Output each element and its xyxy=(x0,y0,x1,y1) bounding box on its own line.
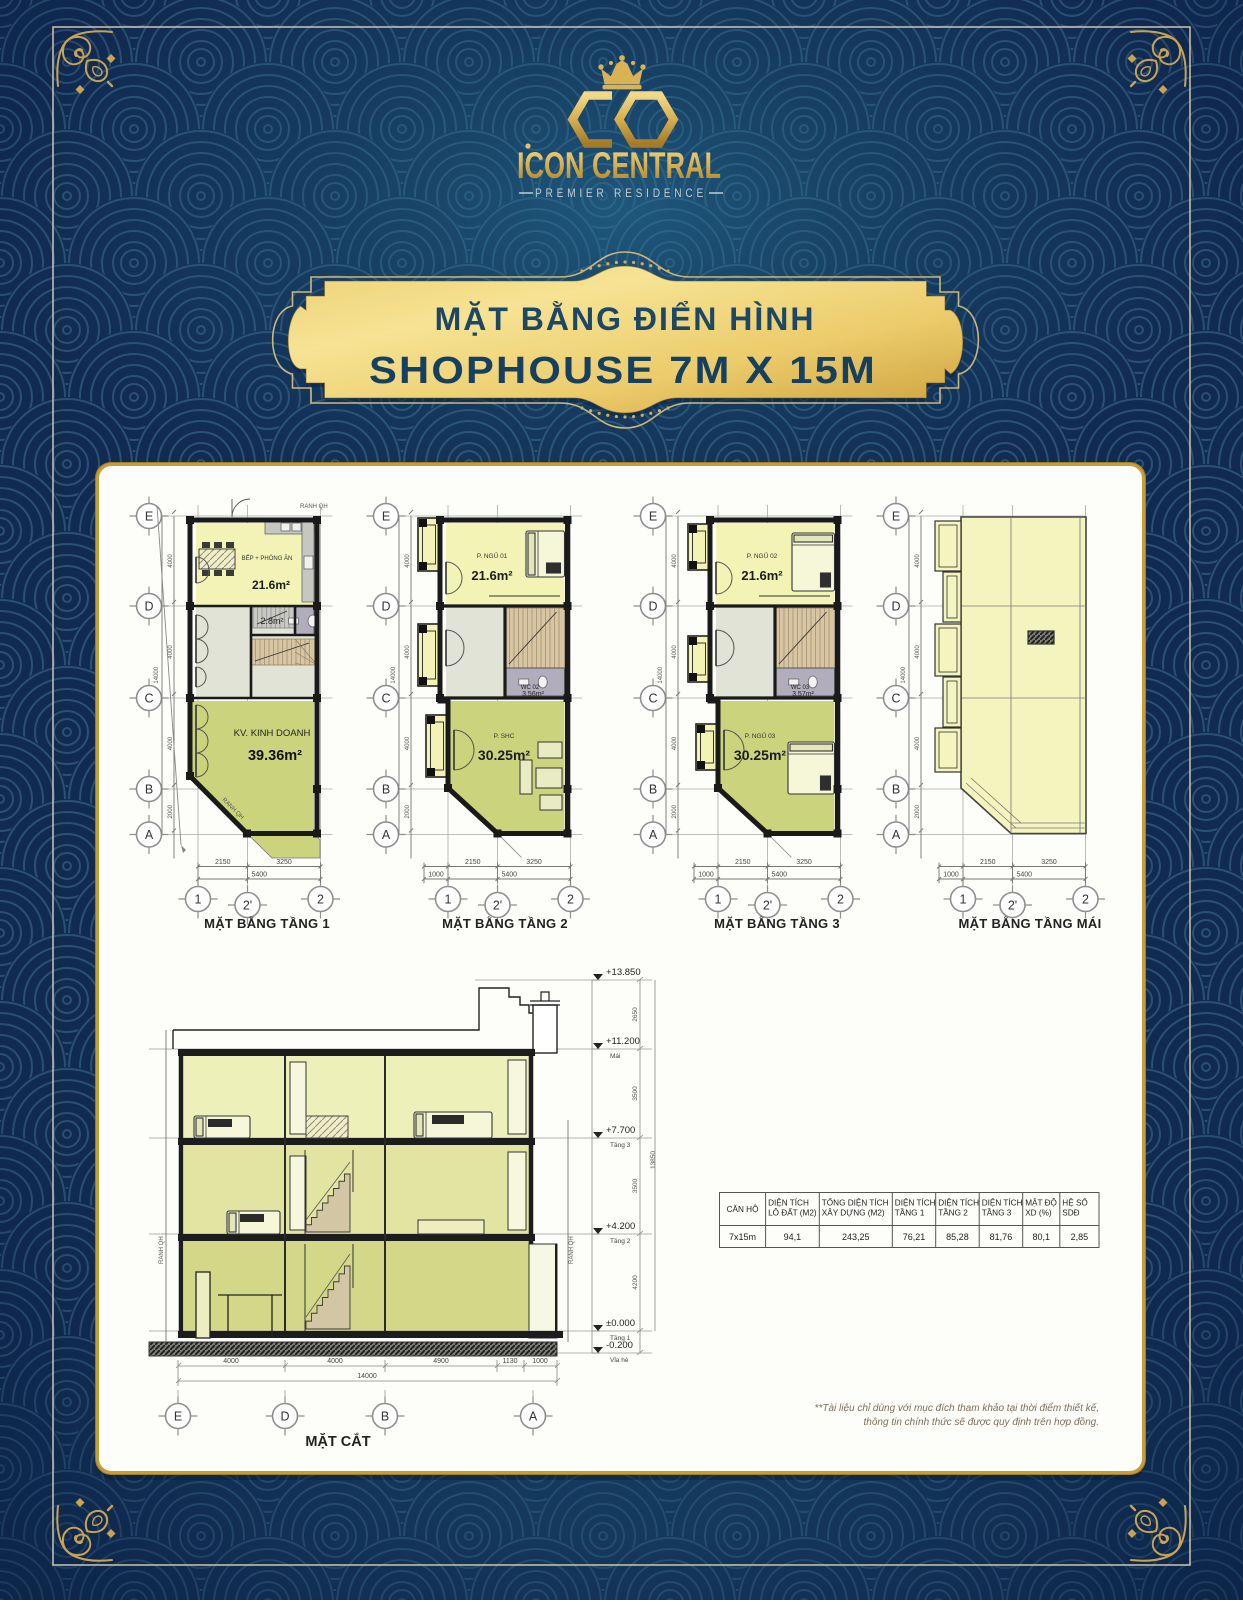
svg-text:1: 1 xyxy=(715,893,722,907)
svg-text:4000: 4000 xyxy=(405,645,411,659)
svg-text:TẦNG 2: TẦNG 2 xyxy=(938,1208,968,1218)
svg-text:1: 1 xyxy=(960,893,967,907)
svg-text:21.6m²: 21.6m² xyxy=(471,568,513,583)
svg-text:1000: 1000 xyxy=(943,872,959,879)
svg-text:LÔ ĐẤT (M2): LÔ ĐẤT (M2) xyxy=(768,1208,817,1218)
svg-text:B: B xyxy=(381,1410,389,1424)
svg-text:HỆ SỐ: HỆ SỐ xyxy=(1062,1197,1087,1208)
svg-text:2,85: 2,85 xyxy=(1071,1232,1089,1242)
svg-text:4000: 4000 xyxy=(672,736,678,750)
svg-text:243,25: 243,25 xyxy=(842,1232,870,1242)
svg-text:XÂY DỰNG (M2): XÂY DỰNG (M2) xyxy=(822,1208,885,1218)
svg-text:MẶT BẰNG TẦNG 1: MẶT BẰNG TẦNG 1 xyxy=(204,916,330,931)
svg-text:MẶT BẰNG TẦNG 2: MẶT BẰNG TẦNG 2 xyxy=(442,916,568,931)
svg-text:MẶT BẰNG TẦNG MÁI: MẶT BẰNG TẦNG MÁI xyxy=(958,916,1101,931)
svg-text:2000: 2000 xyxy=(168,804,174,818)
svg-text:MẶT BẰNG ĐIỂN HÌNH: MẶT BẰNG ĐIỂN HÌNH xyxy=(435,301,816,337)
svg-text:P. NGỦ 02: P. NGỦ 02 xyxy=(747,551,778,560)
svg-text:MẶT BẰNG TẦNG 3: MẶT BẰNG TẦNG 3 xyxy=(714,916,840,931)
svg-text:81,76: 81,76 xyxy=(990,1232,1013,1242)
svg-text:TẦNG 3: TẦNG 3 xyxy=(982,1208,1012,1218)
svg-text:4000: 4000 xyxy=(915,554,921,568)
svg-text:4000: 4000 xyxy=(223,1358,239,1365)
svg-text:2: 2 xyxy=(837,893,844,907)
svg-text:4000: 4000 xyxy=(168,645,174,659)
svg-text:21.6m²: 21.6m² xyxy=(741,568,783,583)
svg-text:RANH QH: RANH QH xyxy=(159,1236,165,1264)
svg-text:2150: 2150 xyxy=(735,859,751,866)
svg-text:4000: 4000 xyxy=(915,645,921,659)
svg-text:5400: 5400 xyxy=(251,872,267,879)
svg-text:2': 2' xyxy=(243,899,252,913)
svg-text:13850: 13850 xyxy=(650,1151,657,1169)
svg-text:2: 2 xyxy=(567,893,574,907)
svg-text:3250: 3250 xyxy=(1041,859,1057,866)
svg-text:1000: 1000 xyxy=(698,872,714,879)
svg-text:MẶT CẮT: MẶT CẮT xyxy=(305,1432,370,1450)
svg-text:4000: 4000 xyxy=(405,736,411,750)
svg-text:RANH QH: RANH QH xyxy=(300,504,328,510)
svg-text:P. NGỦ 03: P. NGỦ 03 xyxy=(745,731,776,740)
svg-text:4900: 4900 xyxy=(433,1358,449,1365)
svg-text:E: E xyxy=(382,510,390,524)
svg-text:2150: 2150 xyxy=(465,859,481,866)
svg-text:76,21: 76,21 xyxy=(903,1232,926,1242)
svg-text:3250: 3250 xyxy=(796,859,812,866)
svg-text:30.25m²: 30.25m² xyxy=(478,747,530,763)
svg-text:Tầng 2: Tầng 2 xyxy=(610,1236,631,1245)
svg-text:B: B xyxy=(892,783,900,797)
svg-text:E: E xyxy=(145,510,153,524)
svg-text:DIỆN TÍCH: DIỆN TÍCH xyxy=(938,1198,979,1208)
svg-text:3.56m²: 3.56m² xyxy=(522,691,544,698)
svg-text:3500: 3500 xyxy=(632,1178,639,1193)
svg-text:+7.700: +7.700 xyxy=(606,1125,635,1136)
svg-text:A: A xyxy=(892,828,901,842)
svg-text:P. NGỦ 01: P. NGỦ 01 xyxy=(477,551,508,560)
svg-text:2: 2 xyxy=(1082,893,1089,907)
svg-text:E: E xyxy=(649,510,657,524)
svg-text:85,28: 85,28 xyxy=(946,1232,969,1242)
svg-text:thông tin chính thức sẽ được q: thông tin chính thức sẽ được quy định tr… xyxy=(864,1416,1099,1428)
svg-text:C: C xyxy=(144,692,153,706)
svg-text:30.25m²: 30.25m² xyxy=(734,747,786,763)
svg-text:SHOPHOUSE 7M X 15M: SHOPHOUSE 7M X 15M xyxy=(369,350,877,392)
svg-text:4200: 4200 xyxy=(632,1275,639,1290)
svg-text:TẦNG 1: TẦNG 1 xyxy=(895,1208,925,1218)
svg-text:Vỉa hè: Vỉa hè xyxy=(610,1356,629,1364)
svg-text:Tầng 3: Tầng 3 xyxy=(610,1140,631,1149)
svg-text:D: D xyxy=(648,600,657,614)
svg-text:D: D xyxy=(280,1410,289,1424)
svg-text:RANH QH: RANH QH xyxy=(569,1236,575,1264)
svg-text:3250: 3250 xyxy=(526,859,542,866)
svg-text:DIỆN TÍCH: DIỆN TÍCH xyxy=(895,1198,936,1208)
svg-text:+4.200: +4.200 xyxy=(606,1221,635,1232)
svg-text:D: D xyxy=(381,600,390,614)
svg-text:D: D xyxy=(891,600,900,614)
svg-text:CĂN HỘ: CĂN HỘ xyxy=(727,1204,759,1214)
svg-text:A: A xyxy=(145,828,154,842)
svg-text:94,1: 94,1 xyxy=(784,1232,802,1242)
svg-text:DIỆN TÍCH: DIỆN TÍCH xyxy=(768,1198,809,1208)
svg-text:2': 2' xyxy=(493,899,502,913)
svg-text:A: A xyxy=(529,1410,538,1424)
svg-text:E: E xyxy=(174,1410,182,1424)
svg-text:±0.000: ±0.000 xyxy=(606,1318,635,1329)
svg-text:1130: 1130 xyxy=(502,1358,517,1365)
svg-text:**Tài liệu chỉ dùng với mục đí: **Tài liệu chỉ dùng với mục đích tham kh… xyxy=(815,1402,1099,1414)
svg-text:MẬT ĐỘ: MẬT ĐỘ xyxy=(1025,1198,1057,1208)
svg-text:1000: 1000 xyxy=(428,872,444,879)
svg-text:1: 1 xyxy=(445,893,452,907)
svg-text:5400: 5400 xyxy=(501,872,517,879)
svg-text:+11.200: +11.200 xyxy=(606,1036,640,1047)
svg-text:KV. KINH DOANH: KV. KINH DOANH xyxy=(234,728,311,739)
svg-text:A: A xyxy=(649,828,658,842)
svg-text:B: B xyxy=(382,783,390,797)
svg-text:BẾP + PHÒNG ĂN: BẾP + PHÒNG ĂN xyxy=(242,555,293,562)
svg-text:DIỆN TÍCH: DIỆN TÍCH xyxy=(982,1198,1023,1208)
svg-text:D: D xyxy=(144,600,153,614)
svg-text:14000: 14000 xyxy=(658,666,664,683)
svg-text:14000: 14000 xyxy=(391,666,397,683)
svg-text:C: C xyxy=(381,692,390,706)
svg-text:2': 2' xyxy=(1008,899,1017,913)
svg-text:B: B xyxy=(649,783,657,797)
svg-text:39.36m²: 39.36m² xyxy=(248,748,302,764)
svg-text:7x15m: 7x15m xyxy=(729,1232,756,1242)
svg-text:5400: 5400 xyxy=(1016,872,1032,879)
svg-text:1000: 1000 xyxy=(532,1358,548,1365)
svg-text:3250: 3250 xyxy=(276,859,292,866)
svg-text:2150: 2150 xyxy=(980,859,996,866)
svg-text:-0.200: -0.200 xyxy=(606,1340,633,1351)
svg-text:1: 1 xyxy=(195,893,202,907)
svg-text:14000: 14000 xyxy=(901,666,907,683)
svg-text:4000: 4000 xyxy=(672,554,678,568)
svg-text:XD (%): XD (%) xyxy=(1025,1209,1052,1218)
svg-text:P. SHC: P. SHC xyxy=(494,733,515,740)
svg-text:4000: 4000 xyxy=(672,645,678,659)
svg-text:4000: 4000 xyxy=(915,736,921,750)
svg-text:5400: 5400 xyxy=(771,872,787,879)
svg-text:4000: 4000 xyxy=(168,554,174,568)
svg-text:SDĐ: SDĐ xyxy=(1062,1209,1079,1218)
svg-text:4000: 4000 xyxy=(405,554,411,568)
svg-text:21.6m²: 21.6m² xyxy=(252,578,290,592)
svg-text:Mái: Mái xyxy=(610,1053,620,1060)
svg-text:E: E xyxy=(892,510,900,524)
svg-text:ICON CENTRAL: ICON CENTRAL xyxy=(517,145,721,186)
svg-text:2: 2 xyxy=(317,893,324,907)
svg-text:2.8m²: 2.8m² xyxy=(260,616,283,626)
svg-text:14000: 14000 xyxy=(154,666,160,683)
svg-text:TỔNG DIỆN TÍCH: TỔNG DIỆN TÍCH xyxy=(822,1197,889,1208)
svg-text:PREMIER RESIDENCE: PREMIER RESIDENCE xyxy=(535,188,707,200)
svg-text:3500: 3500 xyxy=(632,1086,639,1101)
svg-text:C: C xyxy=(648,692,657,706)
svg-text:A: A xyxy=(382,828,391,842)
svg-text:3.57m²: 3.57m² xyxy=(792,691,814,698)
svg-text:2000: 2000 xyxy=(672,804,678,818)
svg-text:4000: 4000 xyxy=(327,1358,343,1365)
svg-text:2150: 2150 xyxy=(215,859,231,866)
svg-text:+13.850: +13.850 xyxy=(606,967,641,978)
svg-text:80,1: 80,1 xyxy=(1032,1232,1050,1242)
svg-text:2000: 2000 xyxy=(405,804,411,818)
svg-text:14000: 14000 xyxy=(357,1373,377,1380)
svg-text:2': 2' xyxy=(763,899,772,913)
svg-text:2000: 2000 xyxy=(915,804,921,818)
svg-text:C: C xyxy=(891,692,900,706)
svg-text:2650: 2650 xyxy=(632,1007,639,1022)
svg-text:B: B xyxy=(145,783,153,797)
